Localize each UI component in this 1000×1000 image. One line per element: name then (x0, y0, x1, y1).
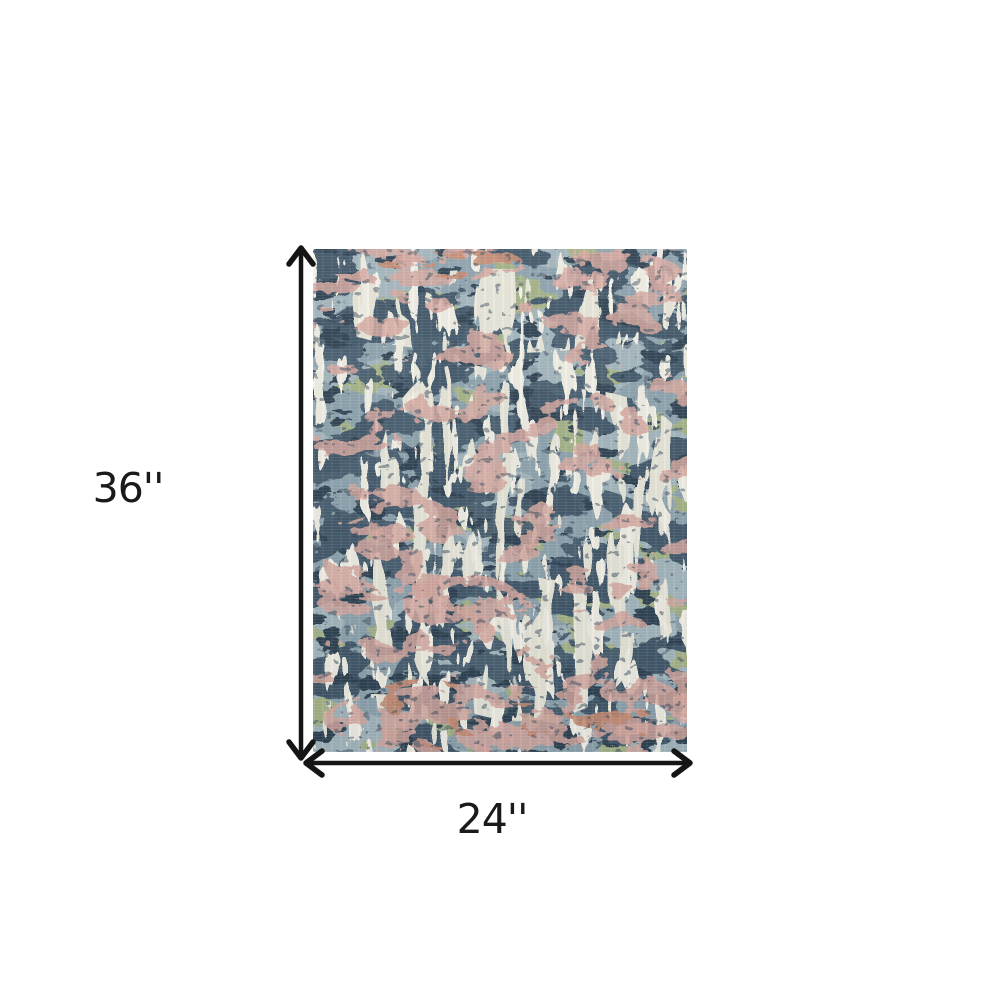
height-arrow-strokes (289, 248, 313, 758)
width-arrow-strokes (306, 751, 690, 775)
rug-artwork (313, 249, 687, 752)
height-dimension-arrow (283, 243, 319, 763)
product-dimension-diagram: 36'' 24'' (0, 0, 1000, 1000)
width-dimension-label: 24'' (412, 792, 572, 846)
width-dimension-arrow (300, 747, 694, 781)
height-dimension-label: 36'' (48, 461, 208, 515)
rug-layer-speckle (313, 249, 687, 752)
rug-image (313, 249, 687, 752)
